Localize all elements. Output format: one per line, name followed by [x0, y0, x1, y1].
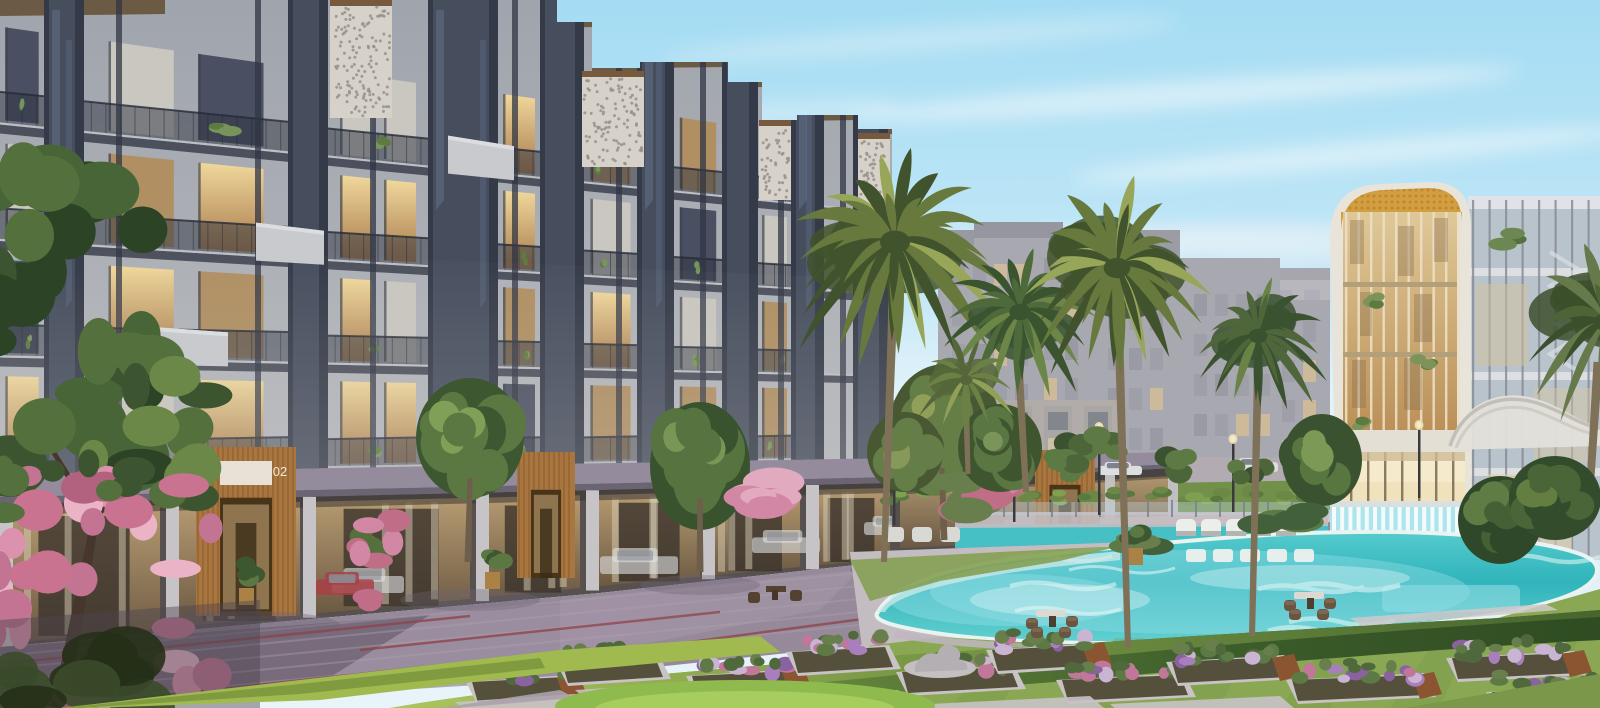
svg-text:02: 02 — [273, 464, 287, 479]
